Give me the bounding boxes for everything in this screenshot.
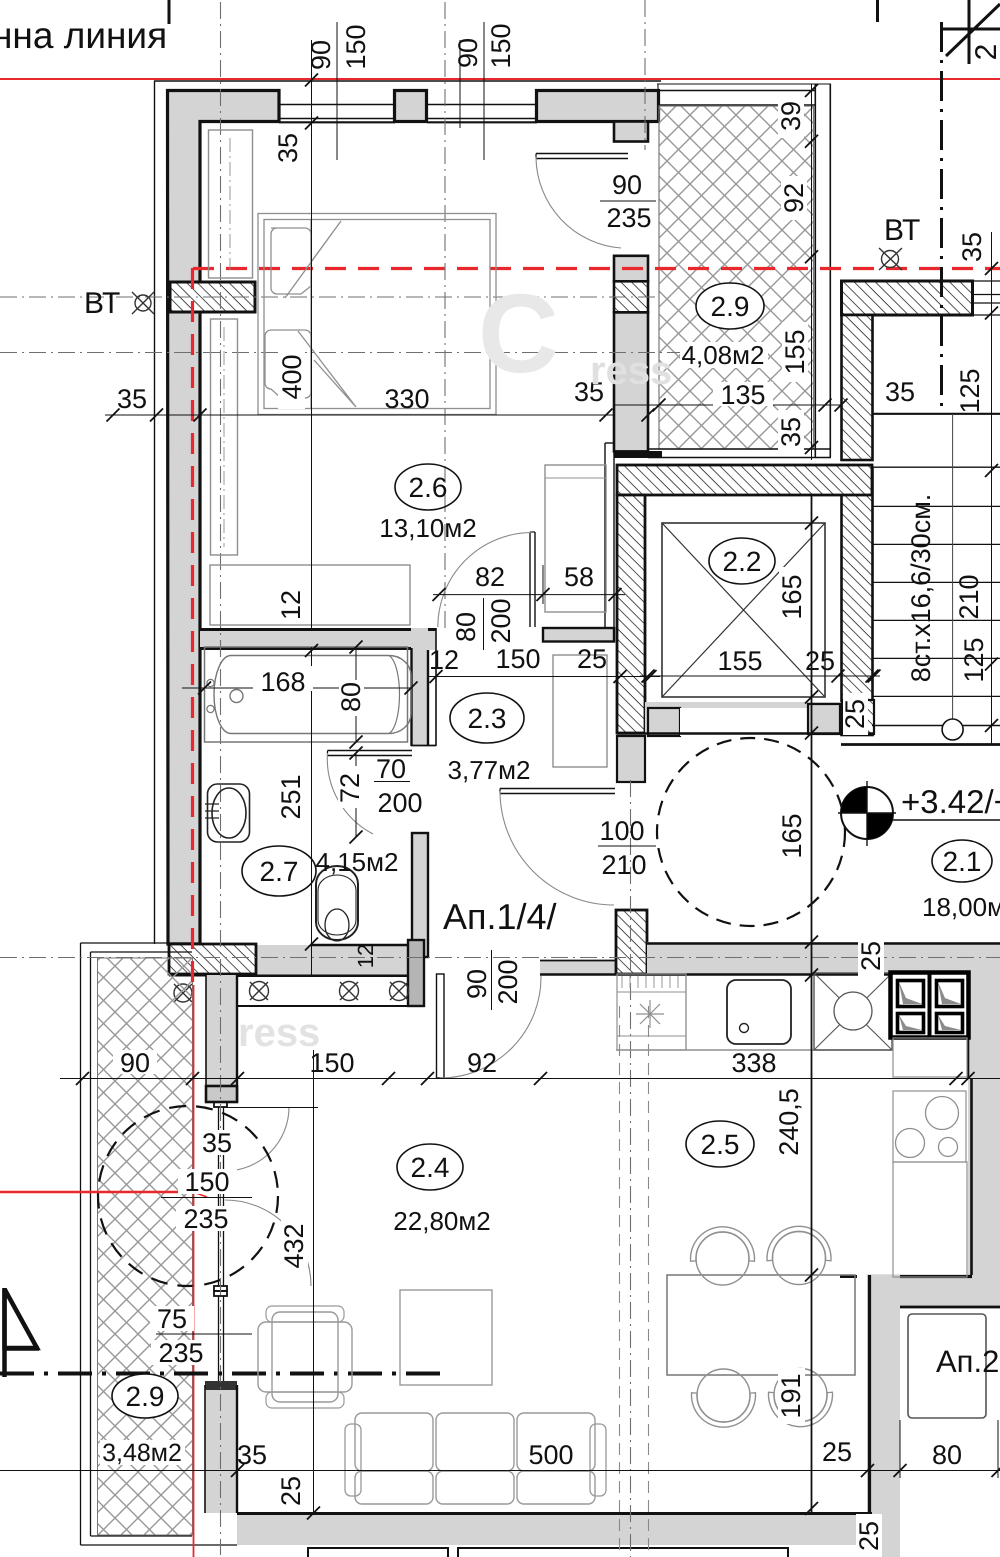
svg-text:25: 25: [805, 646, 835, 676]
svg-text:235: 235: [606, 203, 651, 233]
svg-text:+3.42/+: +3.42/+: [901, 783, 1000, 820]
svg-text:82: 82: [475, 562, 505, 592]
svg-text:12: 12: [429, 645, 459, 675]
svg-text:2.1: 2.1: [943, 846, 982, 877]
svg-text:150: 150: [341, 24, 371, 69]
svg-text:90: 90: [306, 40, 336, 70]
svg-text:125: 125: [959, 637, 989, 682]
svg-text:155: 155: [780, 329, 810, 374]
svg-text:2.4: 2.4: [411, 1152, 450, 1183]
svg-text:25: 25: [577, 644, 607, 674]
svg-text:С: С: [478, 271, 559, 396]
svg-text:ress: ress: [590, 349, 672, 393]
svg-text:39: 39: [776, 101, 806, 131]
svg-text:200: 200: [493, 959, 523, 1004]
svg-text:35: 35: [117, 384, 147, 414]
svg-text:338: 338: [731, 1048, 776, 1078]
svg-text:18,00м2: 18,00м2: [922, 892, 1000, 922]
svg-text:25: 25: [840, 699, 870, 729]
svg-text:200: 200: [486, 598, 516, 643]
svg-text:432: 432: [279, 1223, 309, 1268]
svg-text:ВТ: ВТ: [84, 287, 120, 320]
svg-text:168: 168: [260, 667, 305, 697]
svg-text:150: 150: [495, 644, 540, 674]
svg-text:3,77м2: 3,77м2: [448, 755, 531, 785]
svg-text:58: 58: [564, 562, 594, 592]
svg-text:75: 75: [157, 1304, 187, 1334]
svg-text:25: 25: [854, 1521, 884, 1551]
svg-text:8ст.х16,6/30см.: 8ст.х16,6/30см.: [906, 494, 936, 683]
svg-text:80: 80: [451, 612, 481, 642]
svg-text:90: 90: [612, 170, 642, 200]
svg-text:200: 200: [377, 788, 422, 818]
svg-text:4,15м2: 4,15м2: [316, 847, 399, 877]
svg-text:500: 500: [528, 1440, 573, 1470]
svg-text:240,5: 240,5: [774, 1088, 804, 1156]
svg-text:155: 155: [717, 646, 762, 676]
svg-text:235: 235: [158, 1338, 203, 1368]
svg-text:90: 90: [462, 969, 492, 999]
svg-text:4,08м2: 4,08м2: [682, 340, 765, 370]
svg-text:Ап.1/4/: Ап.1/4/: [443, 896, 557, 937]
svg-text:92: 92: [779, 183, 809, 213]
svg-text:25: 25: [276, 1476, 306, 1506]
svg-text:125: 125: [955, 368, 985, 413]
svg-text:ВТ: ВТ: [884, 214, 920, 247]
svg-text:35: 35: [776, 417, 806, 447]
svg-text:Ап.2: Ап.2: [936, 1344, 999, 1379]
svg-text:92: 92: [467, 1048, 497, 1078]
svg-text:2.6: 2.6: [409, 472, 448, 503]
svg-text:35: 35: [273, 133, 303, 163]
svg-text:2.7: 2.7: [260, 856, 299, 887]
svg-text:35: 35: [957, 232, 987, 262]
svg-text:ress: ress: [238, 1011, 320, 1055]
svg-text:2.9: 2.9: [711, 291, 750, 322]
svg-text:35: 35: [885, 377, 915, 407]
svg-text:35: 35: [237, 1440, 267, 1470]
svg-text:90: 90: [120, 1048, 150, 1078]
svg-text:2.3: 2.3: [468, 703, 507, 734]
svg-text:2.5: 2.5: [701, 1129, 740, 1160]
svg-text:22,80м2: 22,80м2: [393, 1206, 490, 1236]
svg-text:12: 12: [353, 944, 378, 968]
svg-text:150: 150: [486, 23, 516, 68]
svg-text:80: 80: [336, 682, 366, 712]
svg-text:191: 191: [776, 1373, 806, 1418]
svg-text:400: 400: [277, 354, 307, 399]
svg-text:3,48м2: 3,48м2: [102, 1439, 182, 1467]
svg-text:25: 25: [856, 941, 886, 971]
svg-text:210: 210: [601, 850, 646, 880]
svg-text:165: 165: [777, 813, 807, 858]
svg-text:25: 25: [822, 1437, 852, 1467]
svg-text:2.9: 2.9: [126, 1381, 165, 1412]
svg-text:80: 80: [932, 1440, 962, 1470]
svg-text:70: 70: [376, 754, 406, 784]
svg-text:2: 2: [970, 44, 1000, 61]
svg-text:90: 90: [453, 38, 483, 68]
svg-text:12: 12: [276, 590, 306, 620]
svg-text:150: 150: [184, 1167, 229, 1197]
svg-text:13,10м2: 13,10м2: [379, 513, 476, 543]
svg-text:72: 72: [335, 773, 365, 803]
svg-text:135: 135: [720, 380, 765, 410]
svg-text:100: 100: [599, 816, 644, 846]
svg-text:165: 165: [777, 574, 807, 619]
svg-text:235: 235: [183, 1204, 228, 1234]
svg-text:нна линия: нна линия: [0, 15, 167, 56]
svg-text:210: 210: [954, 574, 984, 619]
svg-text:251: 251: [276, 774, 306, 819]
svg-text:2.2: 2.2: [723, 546, 762, 577]
svg-text:35: 35: [202, 1128, 232, 1158]
svg-text:330: 330: [384, 384, 429, 414]
